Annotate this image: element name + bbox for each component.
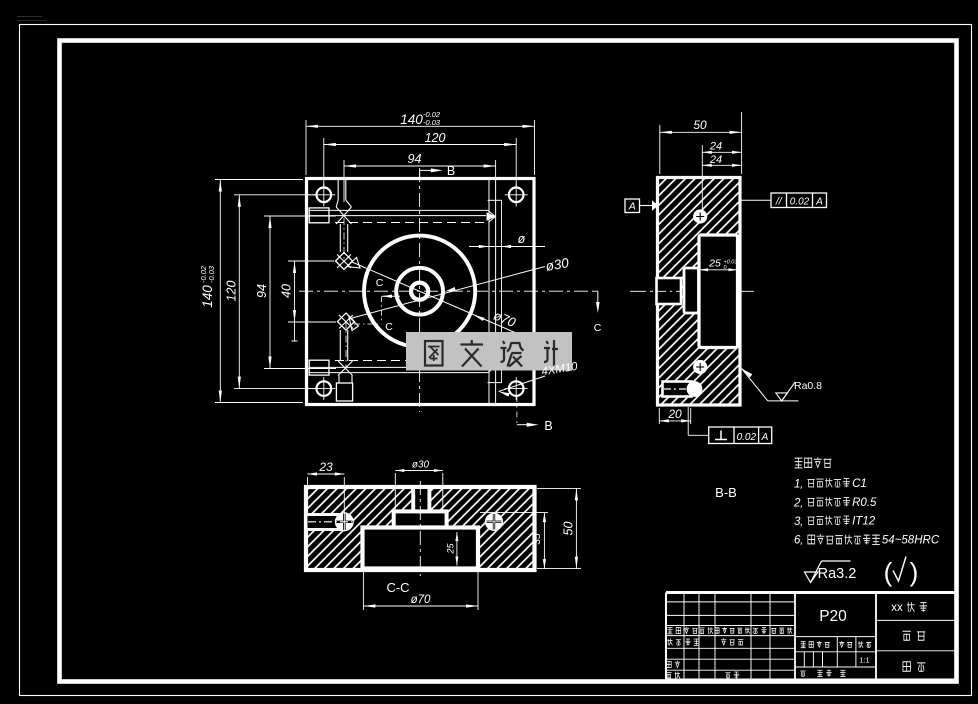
svg-text:A: A bbox=[761, 432, 769, 443]
svg-text:50: 50 bbox=[693, 118, 707, 132]
svg-text:2‚: 2‚ bbox=[793, 498, 803, 510]
svg-text:C1: C1 bbox=[852, 478, 867, 490]
svg-text:Ra3.2: Ra3.2 bbox=[818, 566, 857, 582]
svg-text:C: C bbox=[594, 322, 602, 334]
svg-text:23: 23 bbox=[318, 460, 333, 474]
svg-text:35: 35 bbox=[532, 533, 543, 545]
svg-text:24: 24 bbox=[709, 154, 722, 166]
svg-text:3‚: 3‚ bbox=[794, 516, 803, 528]
svg-text:1:1: 1:1 bbox=[859, 656, 869, 665]
svg-text://: // bbox=[775, 196, 783, 208]
svg-text:0.02: 0.02 bbox=[737, 432, 757, 443]
svg-text:94: 94 bbox=[408, 152, 422, 166]
svg-text:50: 50 bbox=[562, 522, 576, 536]
svg-text:C: C bbox=[376, 277, 384, 289]
svg-text:-0.03: -0.03 bbox=[423, 118, 441, 127]
svg-text:1‚: 1‚ bbox=[794, 479, 803, 491]
svg-text:P20: P20 bbox=[819, 608, 847, 625]
svg-text:94: 94 bbox=[255, 284, 269, 298]
svg-text:Ra0.8: Ra0.8 bbox=[794, 380, 822, 392]
svg-text:120: 120 bbox=[425, 131, 446, 145]
svg-text:ø30: ø30 bbox=[412, 460, 430, 471]
svg-text:A: A bbox=[628, 201, 636, 213]
svg-text:IT12: IT12 bbox=[852, 516, 876, 528]
svg-text:C-C: C-C bbox=[386, 580, 409, 595]
svg-text:ø: ø bbox=[518, 232, 526, 246]
svg-text:B: B bbox=[447, 164, 455, 178]
svg-text:C: C bbox=[385, 321, 393, 333]
svg-text:B-B: B-B bbox=[715, 485, 737, 500]
svg-text:(: ( bbox=[884, 557, 893, 587]
svg-text:54~58HRC: 54~58HRC bbox=[882, 535, 940, 547]
svg-text:25: 25 bbox=[446, 543, 456, 555]
svg-text:24: 24 bbox=[709, 141, 722, 153]
svg-text:xx: xx bbox=[891, 602, 903, 614]
svg-text:6‚: 6‚ bbox=[794, 535, 803, 547]
svg-text:20: 20 bbox=[667, 407, 682, 421]
svg-text:R0.5: R0.5 bbox=[852, 497, 877, 509]
svg-text:40: 40 bbox=[280, 284, 294, 298]
svg-text:140: 140 bbox=[400, 112, 423, 127]
svg-text:ø70: ø70 bbox=[411, 594, 431, 606]
svg-text:0.02: 0.02 bbox=[790, 196, 810, 207]
svg-text:A: A bbox=[815, 197, 823, 208]
svg-text:25: 25 bbox=[708, 258, 721, 270]
svg-text:): ) bbox=[910, 557, 919, 587]
svg-text:120: 120 bbox=[225, 281, 239, 302]
svg-text:-0.03: -0.03 bbox=[207, 265, 216, 283]
svg-text:140: 140 bbox=[200, 285, 215, 308]
svg-text:B: B bbox=[544, 419, 552, 433]
